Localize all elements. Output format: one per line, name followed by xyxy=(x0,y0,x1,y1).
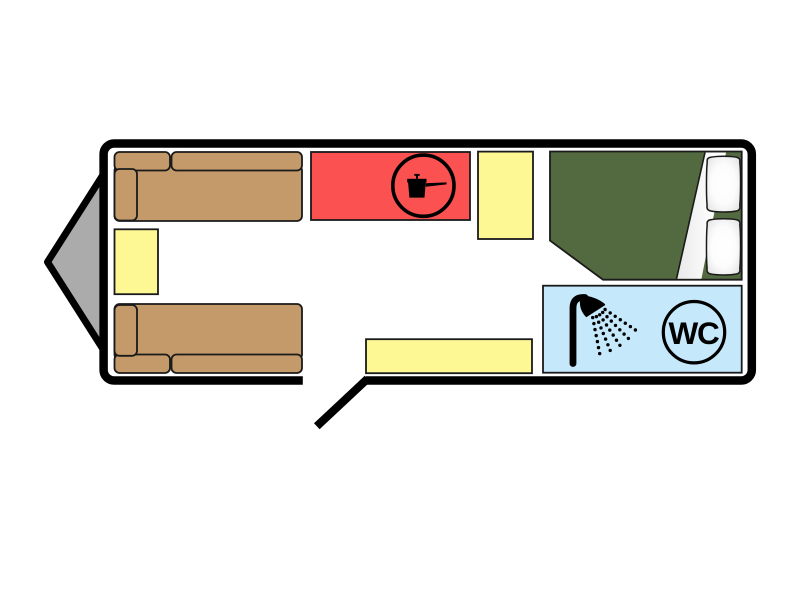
svg-text:WC: WC xyxy=(668,315,719,351)
